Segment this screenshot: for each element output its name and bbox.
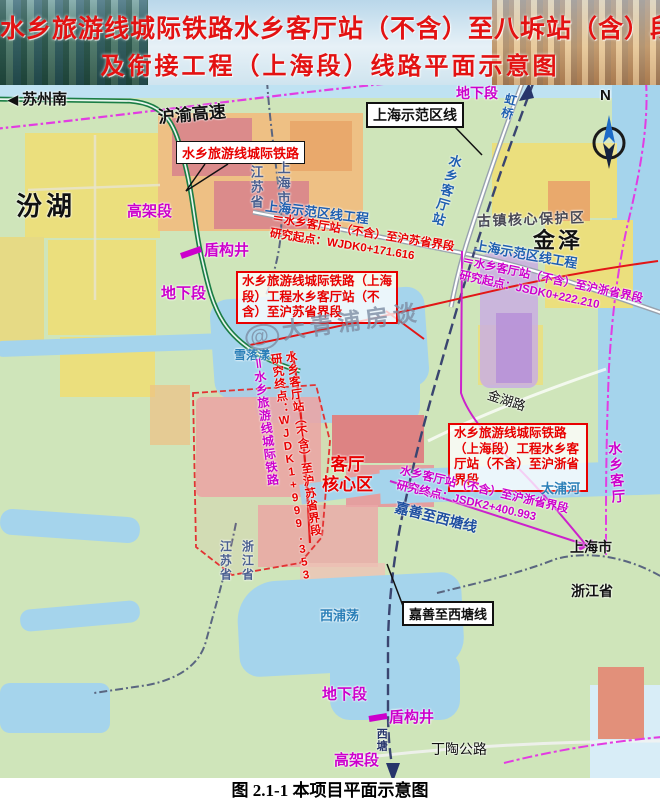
water-patch	[0, 508, 141, 544]
watermark-at-icon: @	[244, 322, 281, 352]
land-patch	[48, 240, 156, 335]
shanghai-right-label: 上海市	[570, 539, 612, 556]
map-figure-page: 水乡旅游线城际铁路水乡客厅站（不含）至八坼站（含）段 及衔接工程（上海段）线路平…	[0, 0, 660, 803]
keting-station-label: 水乡客厅站	[428, 152, 464, 228]
keting-core-line1: 客厅	[322, 455, 373, 475]
jinhu-road-label: 金湖路	[486, 387, 528, 414]
land-patch	[598, 667, 644, 739]
map-title-line1: 水乡旅游线城际铁路水乡客厅站（不含）至八坼站（含）段	[0, 9, 660, 45]
xipudang-label: 西浦荡	[320, 608, 359, 624]
zhejiang-right-label: 浙江省	[571, 583, 613, 600]
section-elevated-bottom: 高架段	[334, 752, 379, 770]
compass-north-label: N	[600, 87, 611, 105]
keting-core-label: 客厅 核心区	[322, 455, 373, 494]
map-title-line2: 及衔接工程（上海段）线路平面示意图	[0, 46, 660, 81]
water-patch	[0, 85, 660, 98]
section-underground-top: 地下段	[456, 85, 498, 102]
water-patch	[0, 683, 110, 733]
dingtao-road-label: 丁陶公路	[431, 741, 487, 758]
shifanqu-box-callout	[452, 124, 482, 155]
province-jiangsu-bottom: 江苏省	[218, 540, 232, 582]
direction-suzhou-south-label: 苏州南	[22, 91, 67, 108]
taipu-river-label: 太浦河	[541, 481, 580, 497]
province-boundary-right	[437, 555, 660, 593]
province-zhejiang-bottom: 浙江省	[240, 540, 254, 582]
province-jiangsu-top: 江苏省	[248, 165, 264, 210]
figure-caption: 图 2.1-1 本项目平面示意图	[0, 778, 660, 803]
left-arrow-icon: ◀	[8, 92, 18, 107]
section-underground-bottom: 地下段	[322, 686, 367, 704]
keting-core-line2: 核心区	[322, 475, 373, 495]
title-banner: 水乡旅游线城际铁路水乡客厅站（不含）至八坼站（含）段 及衔接工程（上海段）线路平…	[0, 0, 660, 85]
section-underground-left: 地下段	[161, 285, 206, 303]
section-elevated-top: 高架段	[127, 203, 172, 221]
land-patch	[150, 385, 190, 445]
south-direction-arrow	[386, 763, 400, 778]
land-patch	[0, 237, 44, 352]
section-shield-top: 盾构井	[204, 242, 249, 260]
land-patch	[25, 133, 160, 238]
direction-xitang: 西塘	[374, 728, 387, 752]
plan-map: ◀ 苏州南 沪渝高速 水乡旅游线城际铁路 汾湖 高架段 盾构井 地下段 江苏省 …	[0, 85, 660, 778]
section-shield-bottom: 盾构井	[389, 709, 434, 727]
shifanqu-line-box: 上海示范区线	[366, 102, 464, 128]
jiashan-xitang-box: 嘉善至西塘线	[402, 601, 494, 626]
water-patch	[19, 600, 140, 632]
shield-shaft-tick-top	[181, 249, 201, 256]
fenhu-label: 汾湖	[16, 191, 76, 222]
direction-suzhou-south: ◀ 苏州南	[8, 91, 67, 109]
guzhen-protected-area	[496, 313, 532, 383]
